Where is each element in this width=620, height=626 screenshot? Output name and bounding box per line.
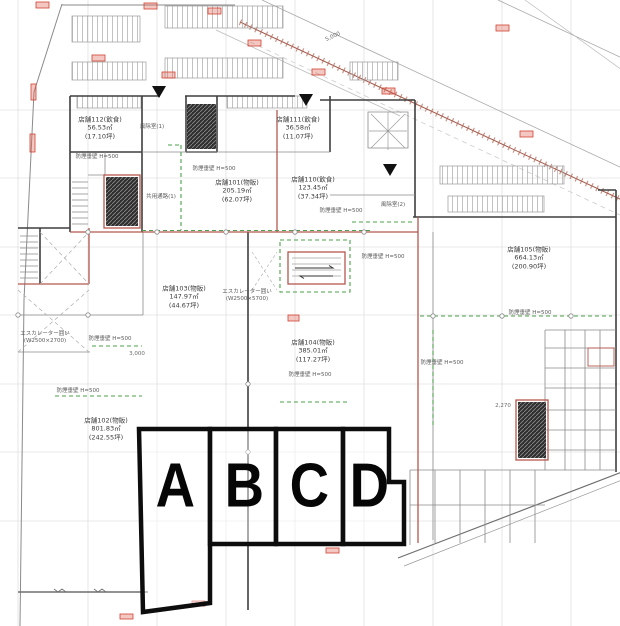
annotation-label: 防煙垂壁 H=500 (320, 206, 363, 214)
annotation-label: 防煙垂壁 H=500 (421, 358, 464, 366)
store-label: 店舗102(物販)801.83㎡(242.55坪) (84, 416, 127, 441)
dimension-label: 2,270 (495, 403, 511, 409)
labels-layer: 店舗112(飲食)56.53㎡(17.10坪)店舗111(飲食)36.58㎡(1… (0, 0, 620, 626)
annotation-label: 風除室(2) (381, 200, 405, 208)
annotation-label: 共用通路(1) (146, 192, 176, 200)
annotation-label: 防煙垂壁 H=500 (193, 164, 236, 172)
annotation-label: 風除室(1) (140, 122, 164, 130)
annotation-label: 防煙垂壁 H=500 (509, 308, 552, 316)
store-label: 店舗104(物販)385.01㎡(117.27坪) (291, 338, 334, 363)
store-label: 店舗111(飲食)36.58㎡(11.07坪) (276, 115, 319, 140)
store-label: 店舗112(飲食)56.53㎡(17.10坪) (78, 115, 121, 140)
annotation-label: エスカレーター囲い (222, 287, 272, 295)
dimension-label: 5,000 (325, 31, 342, 43)
annotation-label: エスカレーター囲い (20, 329, 70, 337)
annotation-label: (W2500×5700) (226, 296, 268, 302)
floor-plan: 店舗112(飲食)56.53㎡(17.10坪)店舗111(飲食)36.58㎡(1… (0, 0, 620, 626)
store-label: 店舗101(物販)205.19㎡(62.07坪) (215, 178, 258, 203)
annotation-label: 防煙垂壁 H=500 (289, 370, 332, 378)
zone-letter-A[interactable]: A (156, 451, 193, 522)
zone-letter-B[interactable]: B (225, 451, 262, 522)
annotation-label: 防煙垂壁 H=500 (362, 252, 405, 260)
annotation-label: 防煙垂壁 H=500 (89, 334, 132, 342)
dimension-label: 3,000 (129, 351, 145, 357)
store-label: 店舗110(飲食)123.45㎡(37.34坪) (291, 175, 334, 200)
zone-letter-C[interactable]: C (290, 451, 327, 522)
zone-letter-D[interactable]: D (350, 451, 387, 522)
annotation-label: (W2500×2700) (24, 338, 66, 344)
annotation-label: 防煙垂壁 H=500 (76, 152, 119, 160)
store-label: 店舗105(物販)664.13㎡(200.90坪) (507, 245, 550, 270)
store-label: 店舗103(物販)147.97㎡(44.67坪) (162, 284, 205, 309)
annotation-label: 防煙垂壁 H=500 (57, 386, 100, 394)
